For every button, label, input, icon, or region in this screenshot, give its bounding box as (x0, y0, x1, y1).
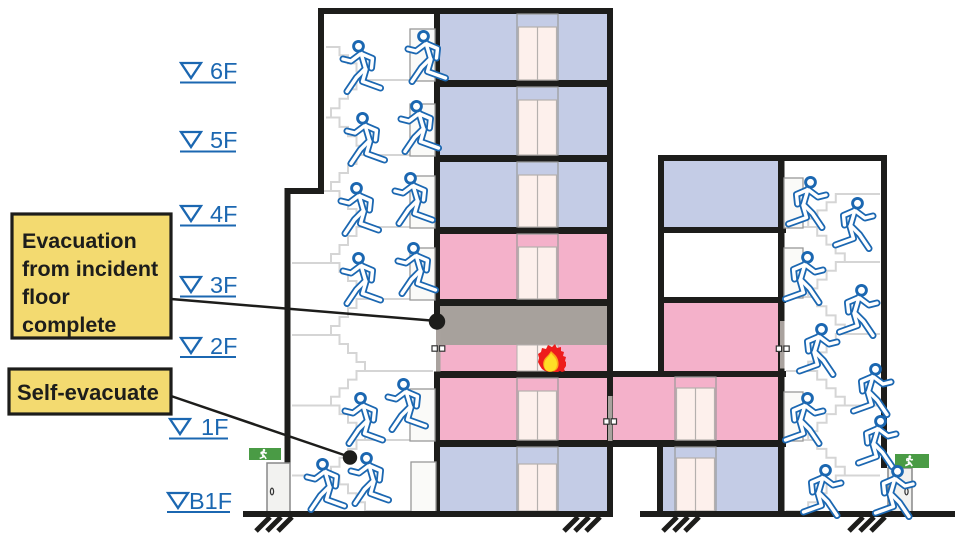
svg-text:1F: 1F (201, 414, 228, 440)
svg-text:5F: 5F (210, 127, 237, 153)
svg-text:3F: 3F (210, 272, 237, 298)
svg-text:from incident: from incident (22, 257, 158, 281)
svg-text:4F: 4F (210, 201, 237, 227)
svg-text:2F: 2F (210, 333, 237, 359)
svg-text:complete: complete (22, 313, 116, 337)
svg-text:6F: 6F (210, 58, 237, 84)
svg-text:B1F: B1F (189, 488, 232, 514)
svg-text:Evacuation: Evacuation (22, 229, 137, 253)
svg-text:Self-evacuate: Self-evacuate (17, 380, 159, 405)
svg-text:floor: floor (22, 285, 70, 309)
